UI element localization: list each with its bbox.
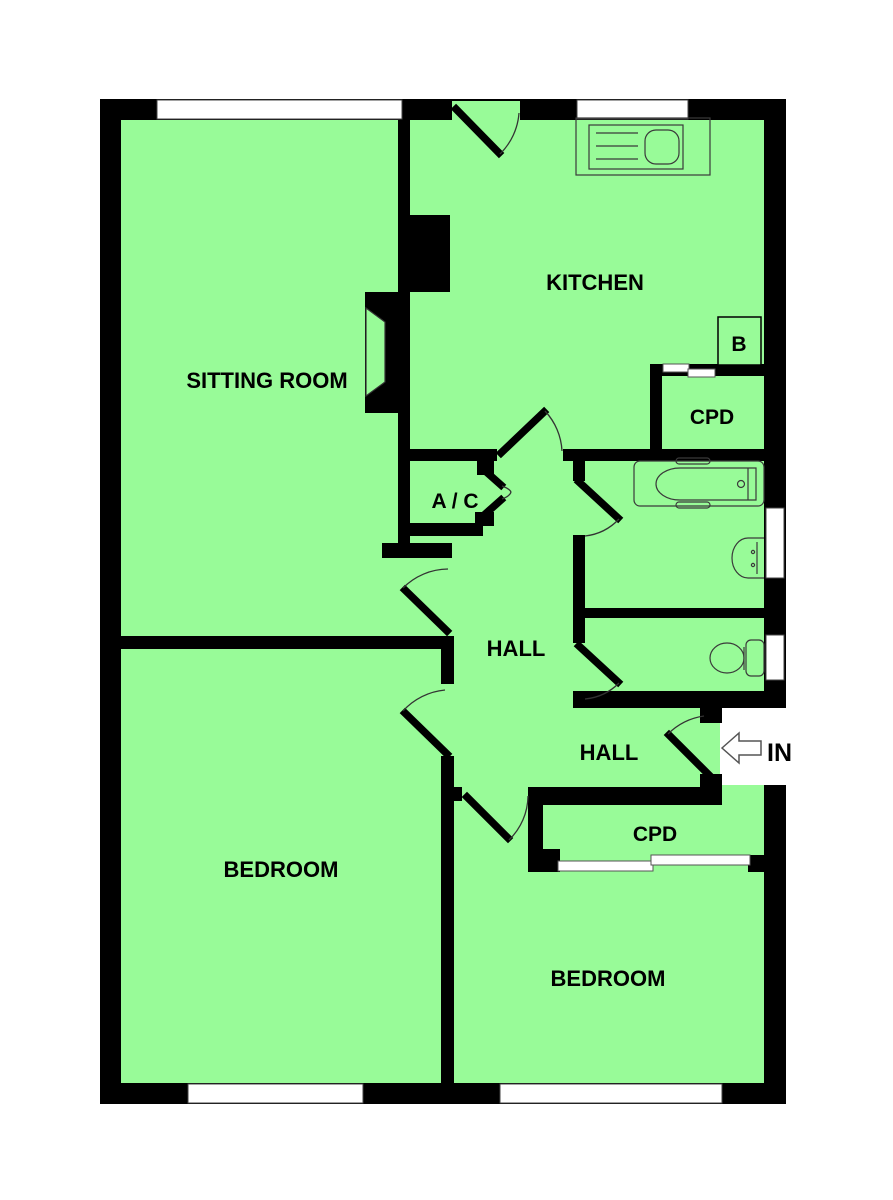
wall xyxy=(382,543,452,558)
floor-plan: SITTING ROOM KITCHEN B CPD A / C HALL HA… xyxy=(0,0,893,1200)
wall-exterior-right xyxy=(764,99,786,1104)
window-bathroom xyxy=(766,508,784,578)
room-label-hall-lower: HALL xyxy=(580,740,639,765)
sliding-door xyxy=(558,861,653,871)
fireplace-icon xyxy=(366,308,385,396)
wall-ac-bottom xyxy=(410,523,483,536)
room-label-cpd-top: CPD xyxy=(690,406,734,429)
wall xyxy=(650,364,662,450)
label-boiler: B xyxy=(731,333,746,356)
wall xyxy=(573,535,585,643)
wall xyxy=(441,756,454,1083)
room-label-sitting-room: SITTING ROOM xyxy=(186,368,347,393)
wall xyxy=(398,120,410,545)
room-label-hall-upper: HALL xyxy=(487,636,546,661)
window-bedroom-right xyxy=(500,1084,722,1103)
window-kitchen xyxy=(577,100,688,119)
sliding-door xyxy=(651,855,750,865)
wall xyxy=(563,449,764,461)
label-entrance-in: IN xyxy=(767,739,792,767)
window-bedroom-left xyxy=(188,1084,363,1103)
room-label-bedroom-right: BEDROOM xyxy=(551,966,666,991)
wall-exterior-left xyxy=(100,99,121,1104)
window-sitting-room xyxy=(157,100,402,119)
wall xyxy=(528,787,722,805)
chimney-block-kitchen xyxy=(410,215,450,292)
wall-wc-bottom xyxy=(573,691,764,708)
wall xyxy=(441,636,454,684)
sliding-door xyxy=(688,369,715,377)
room-label-bedroom-left: BEDROOM xyxy=(224,857,339,882)
wall-bathroom-wc xyxy=(573,608,764,618)
sliding-door xyxy=(663,364,689,372)
wall xyxy=(537,849,560,872)
room-label-cpd-bottom: CPD xyxy=(633,823,677,846)
room-label-kitchen: KITCHEN xyxy=(546,270,644,295)
floor-plan-page: SITTING ROOM KITCHEN B CPD A / C HALL HA… xyxy=(0,0,893,1200)
wall xyxy=(121,636,452,649)
wall xyxy=(441,787,462,801)
window-wc xyxy=(766,635,784,680)
room-label-airing-cupboard: A / C xyxy=(431,490,478,513)
wall-ac-top xyxy=(410,449,497,461)
